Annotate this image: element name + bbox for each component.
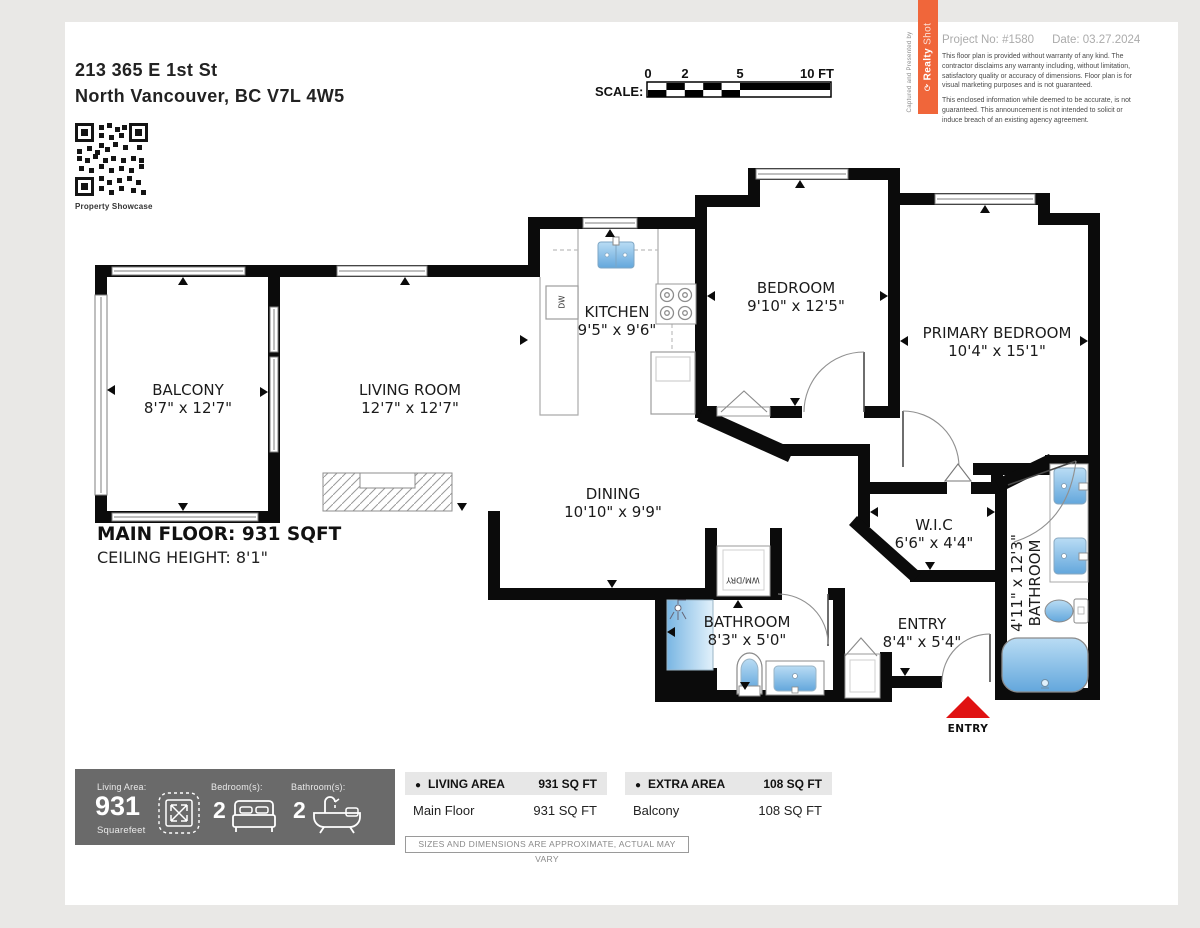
washer-dryer-label: WM/DRY xyxy=(726,576,760,585)
room-dims: 6'6" x 4'4" xyxy=(895,534,974,552)
scale-tick-2: 2 xyxy=(681,66,688,81)
room-name: BEDROOM xyxy=(747,279,845,297)
brand-logo-shot: Shot xyxy=(923,23,934,45)
room-name: DINING xyxy=(564,485,662,503)
bullet-icon: ● xyxy=(415,780,421,791)
living-area-unit: Squarefeet xyxy=(97,825,145,836)
row-label: Main Floor xyxy=(413,803,474,818)
entry-marker-label: ENTRY xyxy=(948,723,989,735)
living-area-table-header: ●LIVING AREA 931 SQ FT xyxy=(405,772,607,795)
address-line-2: North Vancouver, BC V7L 4W5 xyxy=(75,86,345,107)
scale-label: SCALE: xyxy=(595,84,643,99)
room-label-kitchen: KITCHEN 9'5" x 9'6" xyxy=(578,303,657,339)
captured-by-caption: Captured and Presented by xyxy=(907,32,913,113)
row-value: 108 SQ FT xyxy=(758,803,822,818)
project-date: Date: 03.27.2024 xyxy=(1052,34,1140,46)
disclaimer-1: This floor plan is provided without warr… xyxy=(942,52,1136,91)
dimensions-note: SIZES AND DIMENSIONS ARE APPROXIMATE, AC… xyxy=(405,836,689,853)
brand-logo-icon: ⟳ xyxy=(923,83,934,91)
bathrooms-label: Bathroom(s): xyxy=(291,782,345,792)
address-line-1: 213 365 E 1st St xyxy=(75,60,218,81)
room-dims: 8'3" x 5'0" xyxy=(704,631,791,649)
scale-tick-0: 0 xyxy=(644,66,651,81)
room-label-bathroom-main: BATHROOM 8'3" x 5'0" xyxy=(704,613,791,649)
room-name: BATHROOM xyxy=(1026,534,1044,632)
bullet-icon: ● xyxy=(635,780,641,791)
room-name: LIVING ROOM xyxy=(359,381,461,399)
living-area-table: ●LIVING AREA 931 SQ FT Main Floor 931 SQ… xyxy=(405,772,607,825)
disclaimer-2: This enclosed information while deemed t… xyxy=(942,96,1136,125)
room-label-wic: W.I.C 6'6" x 4'4" xyxy=(895,516,974,552)
room-label-living: LIVING ROOM 12'7" x 12'7" xyxy=(359,381,461,417)
table-row: Balcony 108 SQ FT xyxy=(625,795,832,825)
room-name: W.I.C xyxy=(895,516,974,534)
room-dims: 9'10" x 12'5" xyxy=(747,297,845,315)
extra-area-table: ●EXTRA AREA 108 SQ FT Balcony 108 SQ FT xyxy=(625,772,832,825)
room-name: BATHROOM xyxy=(704,613,791,631)
qr-code xyxy=(75,123,148,196)
living-area-table-title: LIVING AREA xyxy=(428,777,505,791)
scale-tick-5: 5 xyxy=(736,66,743,81)
extra-area-table-total: 108 SQ FT xyxy=(763,777,822,791)
extra-area-table-title: EXTRA AREA xyxy=(648,777,725,791)
summary-panel: Living Area: 931 Squarefeet Bedroom(s): … xyxy=(75,769,395,845)
row-value: 931 SQ FT xyxy=(533,803,597,818)
project-info: Project No: #1580 Date: 03.27.2024 xyxy=(942,34,1140,46)
bathrooms-value: 2 xyxy=(293,797,306,824)
room-label-entry: ENTRY 8'4" x 5'4" xyxy=(883,615,962,651)
floorplan-page: 213 365 E 1st St North Vancouver, BC V7L… xyxy=(0,0,1200,928)
bedrooms-label: Bedroom(s): xyxy=(211,782,263,792)
room-label-bathroom-ensuite: BATHROOM 4'11" x 12'3" xyxy=(1008,534,1044,632)
room-name: KITCHEN xyxy=(578,303,657,321)
room-name: PRIMARY BEDROOM xyxy=(923,324,1072,342)
bedrooms-value: 2 xyxy=(213,797,226,824)
room-label-dining: DINING 10'10" x 9'9" xyxy=(564,485,662,521)
room-dims: 12'7" x 12'7" xyxy=(359,399,461,417)
main-floor-area-label: MAIN FLOOR: 931 SQFT xyxy=(97,524,341,545)
area-expand-icon xyxy=(157,791,201,835)
scale-tick-10ft: 10 FT xyxy=(800,66,834,81)
table-row: Main Floor 931 SQ FT xyxy=(405,795,607,825)
room-name: ENTRY xyxy=(883,615,962,633)
extra-area-table-header: ●EXTRA AREA 108 SQ FT xyxy=(625,772,832,795)
room-label-balcony: BALCONY 8'7" x 12'7" xyxy=(144,381,232,417)
room-label-primary-bedroom: PRIMARY BEDROOM 10'4" x 15'1" xyxy=(923,324,1072,360)
room-dims: 9'5" x 9'6" xyxy=(578,321,657,339)
room-dims: 4'11" x 12'3" xyxy=(1008,534,1026,632)
room-dims: 10'10" x 9'9" xyxy=(564,503,662,521)
living-area-value: 931 xyxy=(95,791,140,822)
qr-caption: Property Showcase xyxy=(75,202,153,211)
brand-logo-realty: Realty xyxy=(923,48,934,80)
bed-icon xyxy=(231,797,279,835)
project-number: Project No: #1580 xyxy=(942,34,1034,46)
room-name: BALCONY xyxy=(144,381,232,399)
row-label: Balcony xyxy=(633,803,679,818)
entry-arrow-icon xyxy=(946,696,990,718)
scale-bar xyxy=(647,82,831,97)
brand-logo: ⟳RealtyShot xyxy=(923,23,934,92)
dishwasher-label: DW xyxy=(558,295,567,308)
room-dims: 8'4" x 5'4" xyxy=(883,633,962,651)
living-area-table-total: 931 SQ FT xyxy=(538,777,597,791)
room-dims: 10'4" x 15'1" xyxy=(923,342,1072,360)
bathtub-icon xyxy=(311,793,363,837)
ceiling-height-label: CEILING HEIGHT: 8'1" xyxy=(97,548,268,567)
room-label-bedroom: BEDROOM 9'10" x 12'5" xyxy=(747,279,845,315)
room-dims: 8'7" x 12'7" xyxy=(144,399,232,417)
